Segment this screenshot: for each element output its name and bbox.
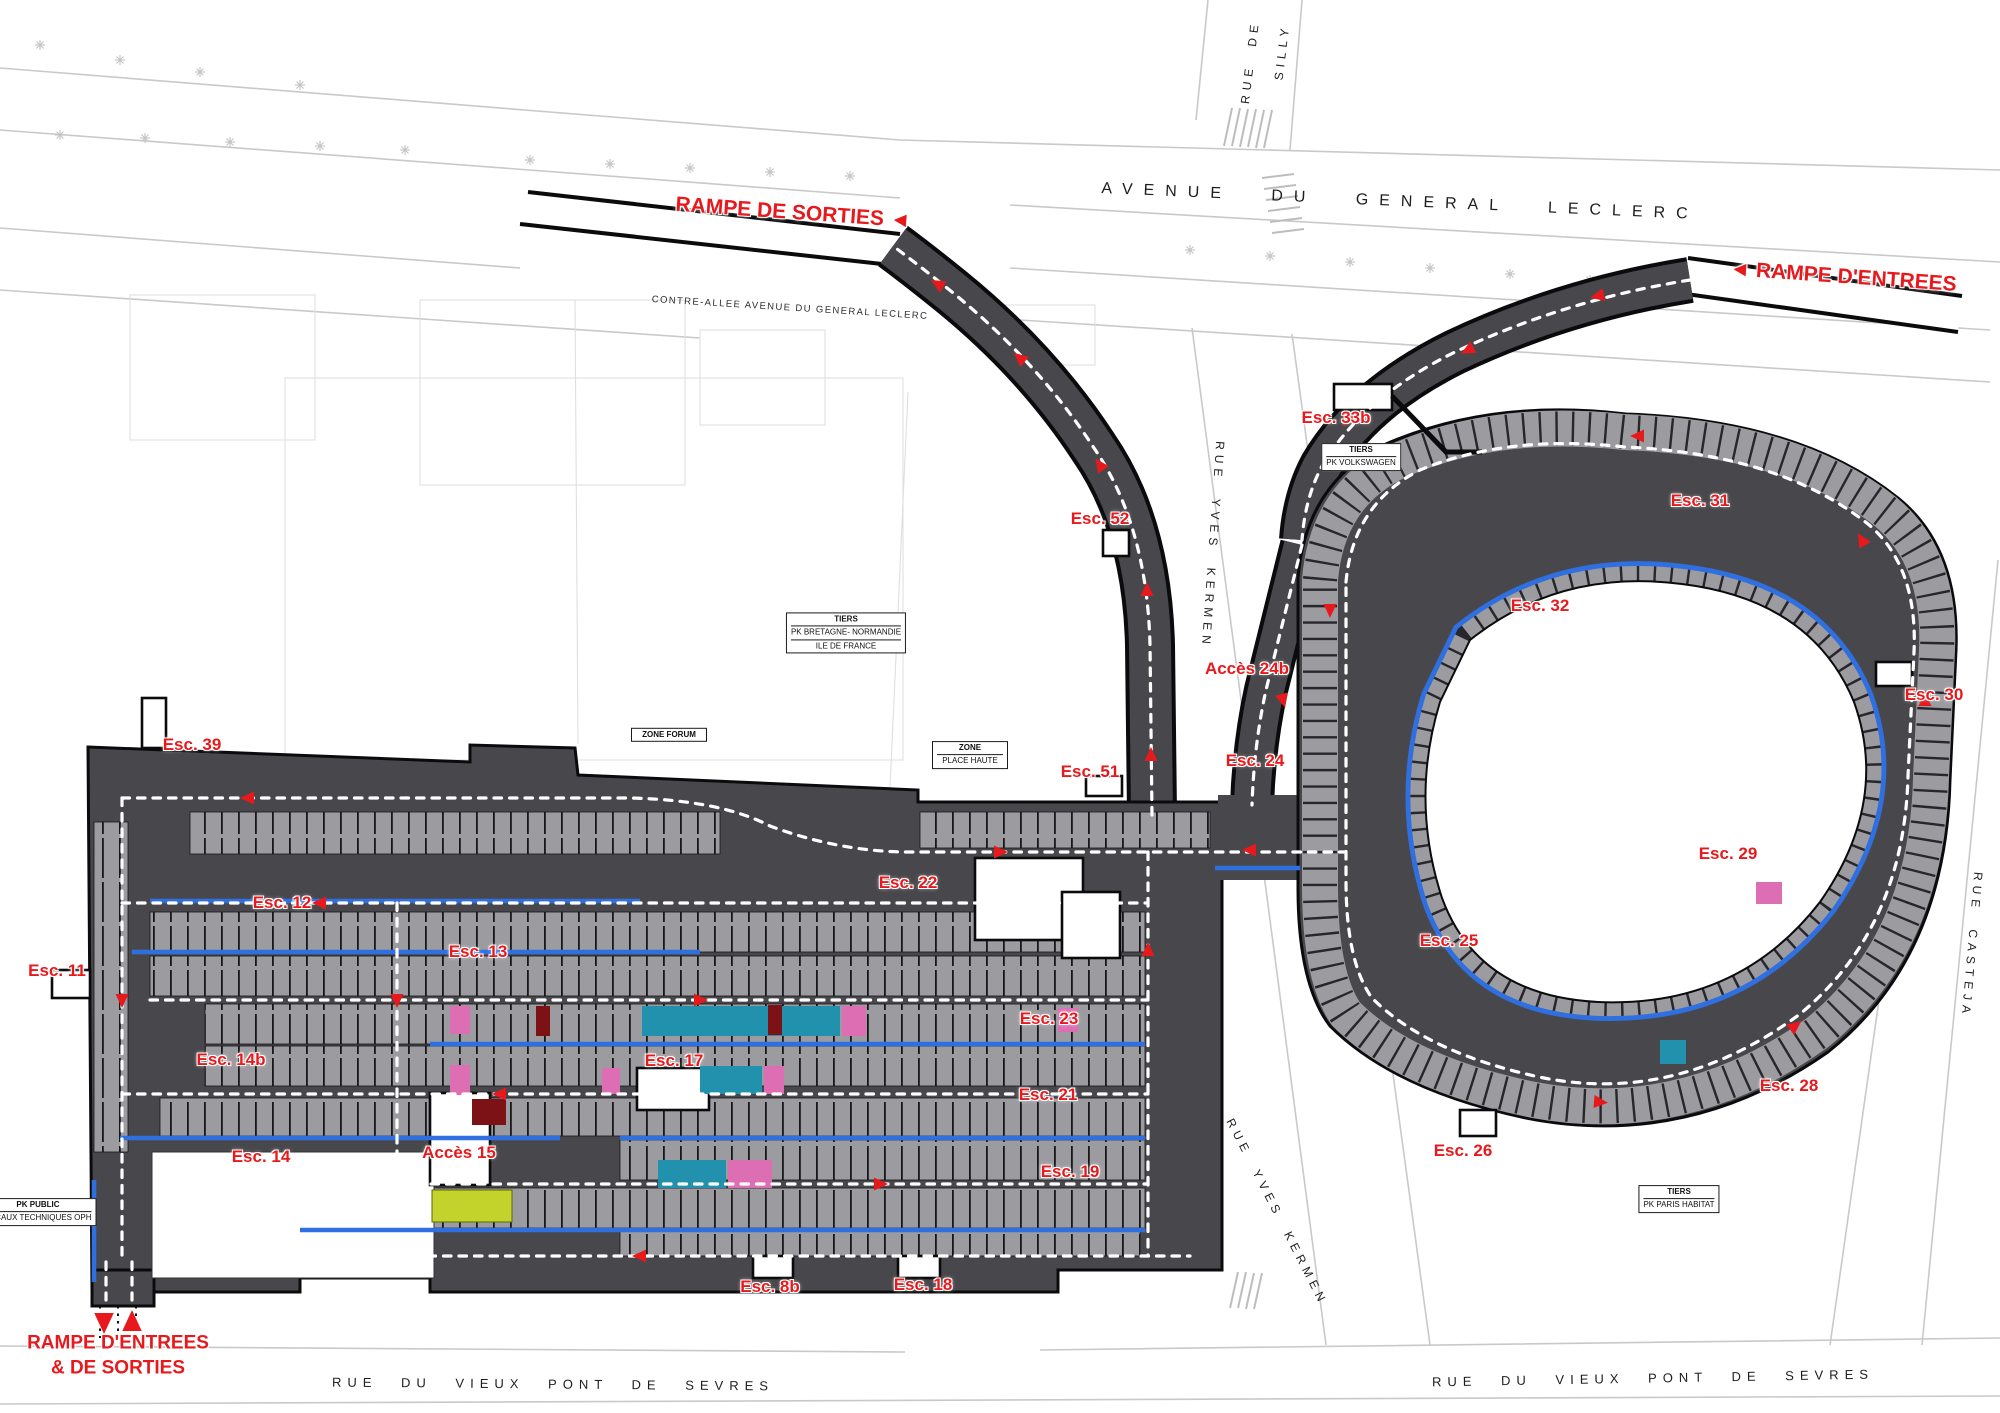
loop-access-road bbox=[1252, 545, 1302, 805]
family-stalls bbox=[602, 1068, 620, 1094]
entry-arrow-icon bbox=[94, 1313, 114, 1334]
family-stalls bbox=[450, 1065, 470, 1095]
esc-39-stairwell bbox=[142, 698, 166, 748]
esc-18-stairwell bbox=[898, 1256, 940, 1278]
motorcycle-area bbox=[768, 1005, 782, 1035]
handicap-stalls bbox=[700, 1066, 762, 1094]
family-stalls bbox=[1756, 882, 1782, 904]
esc-11-stairwell bbox=[52, 970, 90, 998]
family-stalls bbox=[842, 1006, 866, 1036]
entry-ramp-mouth bbox=[1672, 258, 1962, 332]
exit-arrow-icon bbox=[122, 1310, 142, 1331]
handicap-stalls bbox=[642, 1006, 840, 1036]
family-stalls bbox=[1058, 1008, 1078, 1032]
family-stalls bbox=[764, 1066, 784, 1094]
esc-51-stairwell bbox=[1086, 776, 1122, 796]
esc-8b-stairwell bbox=[753, 1256, 793, 1278]
esc-52-stairwell bbox=[1103, 530, 1129, 556]
parking-map-canvas bbox=[0, 0, 2000, 1413]
exit-ramp-mouth bbox=[520, 192, 900, 264]
esc-30-stairwell bbox=[1876, 662, 1912, 686]
electric-vehicle-stalls bbox=[432, 1190, 512, 1222]
parking-level-plan: RAMPE DE SORTIES ◄◄ RAMPE D'ENTREESRAMPE… bbox=[0, 0, 2000, 1413]
handicap-stalls bbox=[1660, 1040, 1686, 1064]
bottom-entry-exit-ramp bbox=[92, 1270, 154, 1306]
motorcycle-area bbox=[472, 1099, 506, 1125]
motorcycle-area bbox=[536, 1006, 550, 1036]
family-stalls bbox=[450, 1006, 470, 1034]
esc-26-stairwell bbox=[1460, 1110, 1496, 1136]
